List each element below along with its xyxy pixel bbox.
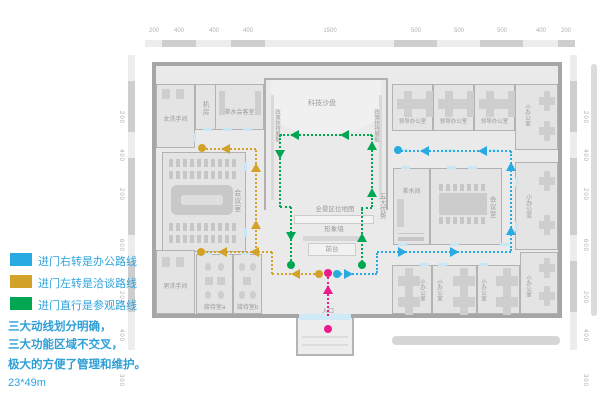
ruler-label: 300 (582, 369, 588, 393)
ruler-segment (570, 312, 577, 350)
room-label: 五大优势 (378, 184, 385, 228)
route-line (337, 273, 377, 275)
arrow-left-icon (290, 130, 299, 140)
door-marker (243, 128, 252, 131)
hall-left-wall (264, 78, 266, 210)
bottom-accent-bar (392, 336, 560, 345)
ruler-segment (265, 40, 394, 47)
route-dot (287, 261, 295, 269)
door-marker (479, 263, 488, 266)
arrow-up-icon (506, 226, 516, 235)
room-label: 小办公室 (525, 264, 531, 308)
chair (239, 263, 245, 271)
desk (453, 289, 475, 315)
ruler-label: 200 (118, 106, 124, 130)
ruler-segment (480, 40, 523, 47)
door-marker (193, 133, 196, 142)
note-line: 三大动线划分明确， (8, 318, 112, 334)
dimension-label: 23*49m (8, 377, 46, 389)
room-tea-room (393, 168, 430, 245)
room-label: 形象墙 (311, 226, 357, 233)
desk (539, 258, 555, 278)
ruler-label: 500 (401, 28, 431, 34)
desk (398, 289, 420, 315)
room-label: 女洗手间 (157, 117, 194, 124)
desk (539, 91, 555, 111)
room-label: 小办公室 (524, 184, 531, 228)
ruler-label: 200 (582, 183, 588, 207)
door-marker (398, 243, 407, 246)
chair (205, 263, 211, 271)
arrow-up-icon (367, 188, 377, 197)
legend-swatch-tour (10, 297, 32, 310)
ruler-segment (570, 158, 577, 235)
arrow-down-icon (275, 150, 285, 159)
arrow-up-icon (357, 233, 367, 242)
door-marker (447, 166, 456, 169)
desk (397, 91, 419, 117)
route-line (327, 277, 329, 316)
ruler-label: 1500 (315, 28, 345, 34)
ruler-segment (128, 312, 135, 350)
note-line: 三大功能区域不交叉， (8, 336, 123, 352)
arrow-up-icon (251, 220, 261, 229)
room-small-office-mid-right (515, 162, 558, 250)
route-dot (197, 248, 205, 256)
ruler-segment (570, 261, 577, 312)
ruler-segment (437, 40, 480, 47)
room-label: 会议室 (488, 186, 495, 228)
arrow-down-icon (286, 232, 296, 241)
room-men-restroom (156, 250, 195, 314)
door-marker (450, 243, 459, 246)
route-dot (324, 269, 332, 277)
chair (250, 263, 256, 271)
image-wall-shape (303, 236, 365, 241)
ruler-segment (570, 81, 577, 132)
door-marker (401, 166, 410, 169)
room-small-office-b1 (392, 265, 432, 314)
ruler-label: 400 (199, 28, 229, 34)
room-women-restroom (156, 84, 195, 148)
door-marker (203, 128, 212, 131)
ruler-label: 400 (164, 28, 194, 34)
ruler-segment (231, 40, 265, 47)
arrow-right-icon (344, 269, 353, 279)
ruler-segment (196, 40, 231, 47)
door-marker (438, 263, 447, 266)
ruler-label: 200 (551, 28, 581, 34)
chair (218, 291, 224, 299)
ruler-segment (145, 40, 162, 47)
desk (539, 171, 555, 191)
ruler-segment (128, 55, 135, 81)
arrow-up-icon (323, 285, 333, 294)
room-label: 会议室 (233, 178, 241, 224)
ruler-segment (558, 40, 575, 47)
door-marker (468, 166, 477, 169)
seat-row (169, 171, 237, 179)
desk (496, 289, 518, 315)
fixture (176, 89, 184, 99)
ruler-label: 200 (118, 183, 124, 207)
route-dot (324, 325, 332, 333)
room-label: 小办公室 (480, 270, 486, 310)
room-label: 领导办公室 (474, 119, 515, 125)
route-line (376, 253, 378, 273)
arrow-right-icon (398, 247, 407, 257)
route-line (279, 135, 281, 207)
arrow-left-icon (218, 247, 227, 257)
floor-plan-diagram: 200 400 400 400 1500 500 500 500 400 200… (0, 0, 600, 400)
room-label: 科技沙盘 (282, 100, 362, 108)
room-label: 小办公室 (436, 270, 442, 310)
door-marker (500, 243, 509, 246)
route-line (271, 252, 273, 274)
room-small-office-top-right (515, 84, 558, 150)
room-label: 领导办公室 (433, 119, 474, 125)
route-line (201, 251, 272, 253)
table (217, 277, 225, 285)
room-label: 男洗手间 (157, 284, 194, 291)
fixture (162, 89, 170, 99)
legend-label: 进门直行是参观路线 (38, 297, 137, 313)
ruler-label: 600 (582, 234, 588, 258)
chair (218, 263, 224, 271)
chair (205, 291, 211, 299)
arrow-up-icon (251, 163, 261, 172)
room-label: 前台 (308, 246, 356, 253)
seat-row (439, 217, 487, 224)
step-line (302, 336, 348, 338)
ruler-segment (128, 81, 135, 132)
ruler-segment (523, 40, 558, 47)
ruler-label: 500 (487, 28, 517, 34)
door-marker (244, 228, 247, 237)
desk (539, 215, 555, 235)
ruler-label: 400 (582, 324, 588, 348)
room-label: 小办公室 (524, 93, 530, 137)
chair (239, 291, 245, 299)
door-marker (420, 263, 429, 266)
door-marker (223, 128, 232, 131)
seat-row (169, 159, 237, 167)
arrow-up-icon (367, 141, 377, 150)
desk (539, 286, 555, 306)
seat-row (169, 223, 237, 231)
ruler-label: 500 (444, 28, 474, 34)
room-label: 接待室a (197, 305, 232, 312)
arrow-left-icon (291, 269, 300, 279)
legend-label: 进门左转是洽谈路线 (38, 275, 137, 291)
route-dot (394, 146, 402, 154)
side-accent-bar (591, 64, 597, 316)
table (205, 277, 213, 285)
step-line (302, 344, 348, 346)
conference-table-inner (181, 195, 223, 205)
door-marker (244, 162, 247, 171)
arrow-left-icon (221, 144, 230, 154)
legend-swatch-office (10, 253, 32, 266)
desk (501, 91, 513, 117)
ruler-label: 300 (118, 369, 124, 393)
note-line: 极大的方便了管理和维护。 (8, 356, 146, 372)
route-line (398, 150, 511, 152)
ruler-segment (394, 40, 437, 47)
ruler-label: 400 (233, 28, 263, 34)
room-label: 茶水会客室 (216, 110, 263, 117)
room-label: 全景区位地图 (300, 206, 370, 213)
table (243, 277, 251, 285)
arrow-up-icon (506, 162, 516, 171)
arrow-left-icon (340, 130, 349, 140)
ruler-segment (162, 40, 196, 47)
legend-label: 进门右转是办公路线 (38, 253, 137, 269)
legend-swatch-negotiation (10, 275, 32, 288)
route-line (361, 207, 372, 209)
room-label: 领导办公室 (392, 119, 433, 125)
ruler-label: 200 (582, 286, 588, 310)
desk (479, 91, 501, 117)
counter (397, 199, 404, 227)
fixture (176, 257, 184, 267)
desk (438, 91, 460, 117)
room-tea-meeting (215, 84, 264, 130)
ruler-label: 400 (582, 144, 588, 168)
desk (539, 121, 555, 141)
ruler-segment (570, 235, 577, 261)
ruler-segment (128, 132, 135, 158)
room-label: 小办公室 (419, 270, 425, 310)
ruler-segment (570, 55, 577, 81)
ruler-label: 200 (582, 106, 588, 130)
room-label: 接待室b (233, 305, 262, 312)
room-label: 机房 (201, 94, 208, 122)
seat-row (169, 235, 237, 243)
arrow-right-icon (450, 247, 459, 257)
counter (398, 233, 424, 241)
conference-table (439, 193, 487, 215)
room-label: 茶水间 (393, 189, 430, 196)
chair (250, 291, 256, 299)
fixture (162, 257, 170, 267)
desk (460, 91, 472, 117)
entrance-vestibule (296, 318, 354, 356)
top-ruler: 200 400 400 400 1500 500 500 500 400 200 (0, 0, 600, 50)
ruler-label: 400 (118, 144, 124, 168)
door-marker (515, 178, 518, 187)
desk (419, 91, 431, 117)
ruler-segment (128, 158, 135, 235)
arrow-left-icon (420, 146, 429, 156)
seat-row (439, 184, 487, 191)
route-dot (198, 144, 206, 152)
arrow-left-icon (478, 146, 487, 156)
ruler-segment (570, 132, 577, 158)
hall-right-wall (386, 78, 388, 210)
